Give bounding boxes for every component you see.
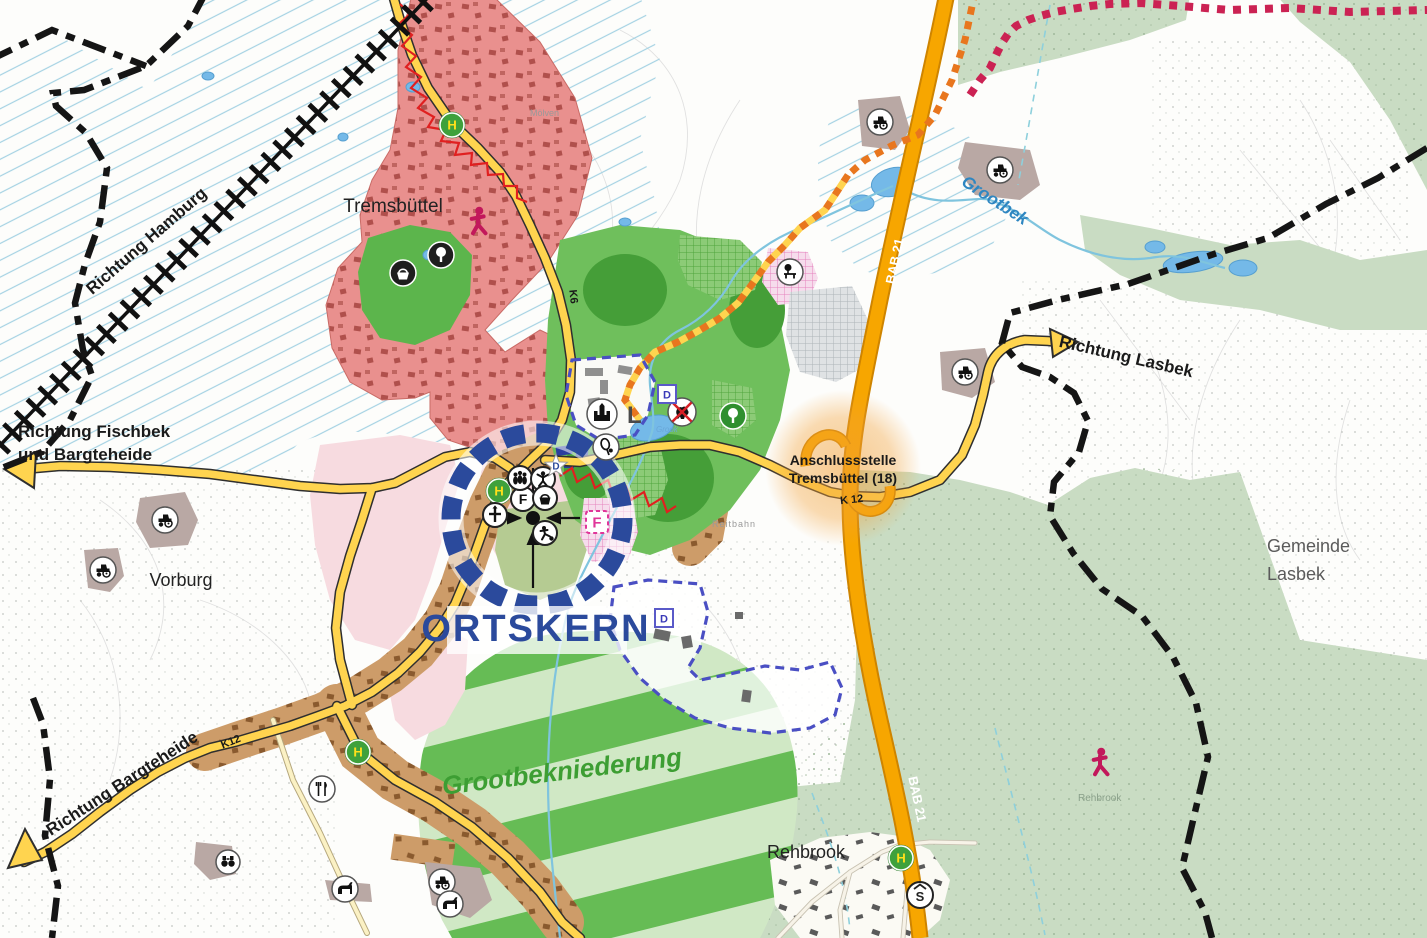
castle-l-label: L [627,402,642,429]
d-square-marker: D [655,609,673,627]
label-gemeinde-lasbek-1: Gemeinde [1267,536,1350,556]
binoculars-icon [216,850,240,874]
svg-text:H: H [447,118,456,133]
map-canvas: ORTSKERN H H H H S F [0,0,1427,938]
label-richtung-fischbek-2: und Bargteheide [18,445,152,464]
svg-text:D: D [660,614,668,626]
d-square-marker: D [658,385,676,403]
tractor-icon [152,507,178,533]
label-rehbrook-forest: Rehbrook [1078,793,1122,804]
bus-stop-icon: H [888,845,914,871]
horse-icon [332,876,358,902]
label-richtung-fischbek-1: Richtung Fischbek [18,422,171,441]
tractor-icon [952,359,978,385]
svg-text:H: H [494,484,503,499]
svg-text:S: S [916,889,925,904]
label-grook: Grook [656,425,679,434]
church-cross-icon [483,503,507,527]
svg-text:H: H [353,745,362,760]
bus-stop-icon: H [345,739,371,765]
tractor-icon [90,557,116,583]
map-stage: ORTSKERN H H H H S F [0,0,1427,938]
crowd-icon [508,466,532,490]
tree-icon [720,403,746,429]
horse-icon [437,891,463,917]
label-reitbahn: Reitbahn [712,519,756,529]
bus-stop-icon: H [439,112,465,138]
label-tremsbuettel: Tremsbüttel [343,196,443,217]
soccer-icon [533,521,557,545]
f-area-marker: F [586,511,608,533]
tractor-icon [867,109,893,135]
tree-icon [428,242,454,268]
label-vorburg: Vorburg [149,570,212,590]
school-icon: S [907,882,933,908]
svg-text:D: D [552,462,559,473]
castle-icon [587,399,617,429]
label-k6: K6 [566,289,579,304]
interchange-glow [765,390,921,546]
tennis-icon [593,434,619,460]
basket-icon [533,486,557,510]
label-k12-east: K 12 [839,493,863,507]
svg-text:D: D [663,390,671,402]
svg-text:F: F [592,515,601,532]
label-moelven: Mölven [530,108,559,118]
tractor-icon [987,157,1013,183]
label-rehbrook: Rehbrook [767,842,846,862]
restaurant-icon [309,776,335,802]
basket-icon [390,260,416,286]
rest-area-icon [777,259,803,285]
svg-text:F: F [519,491,528,507]
label-gemeinde-lasbek-2: Lasbek [1267,564,1326,584]
label-anschlussstelle-2: Tremsbüttel (18) [789,470,897,486]
svg-text:H: H [896,851,905,866]
ortskern-label: ORTSKERN [421,608,650,650]
label-anschlussstelle-1: Anschlussstelle [790,452,897,468]
